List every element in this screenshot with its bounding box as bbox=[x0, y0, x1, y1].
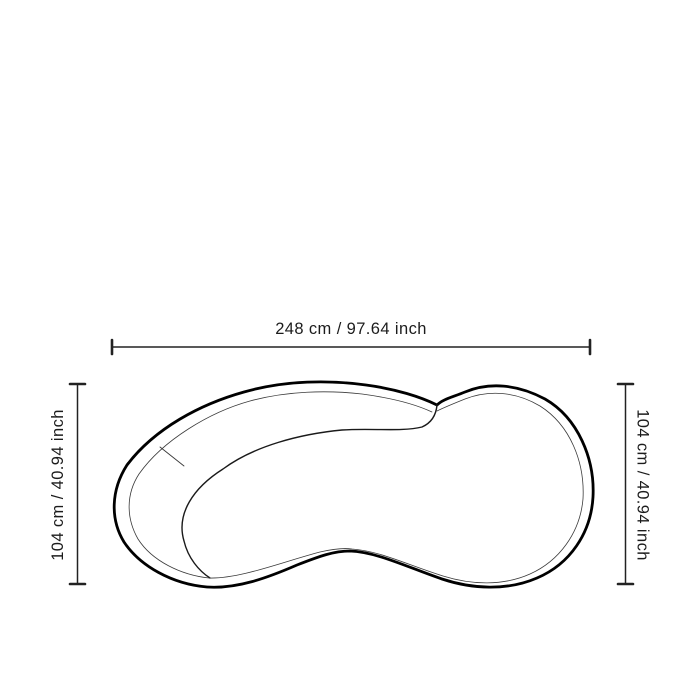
sofa-top-view-drawing bbox=[0, 0, 700, 700]
height-dimension-right bbox=[618, 384, 633, 584]
height-dimension-left bbox=[70, 384, 85, 584]
height-dimension-left-label: 104 cm / 40.94 inch bbox=[50, 409, 67, 561]
width-dimension-label: 248 cm / 97.64 inch bbox=[275, 321, 427, 338]
sofa-backrest-seam bbox=[160, 447, 184, 466]
product-dimension-diagram: 248 cm / 97.64 inch 104 cm / 40.94 inch … bbox=[0, 0, 700, 700]
sofa-piping-line bbox=[129, 392, 583, 583]
sofa-outer-outline bbox=[114, 382, 593, 587]
height-dimension-right-label: 104 cm / 40.94 inch bbox=[634, 409, 651, 561]
sofa-backrest-inner-edge bbox=[182, 405, 437, 578]
width-dimension bbox=[112, 340, 590, 354]
